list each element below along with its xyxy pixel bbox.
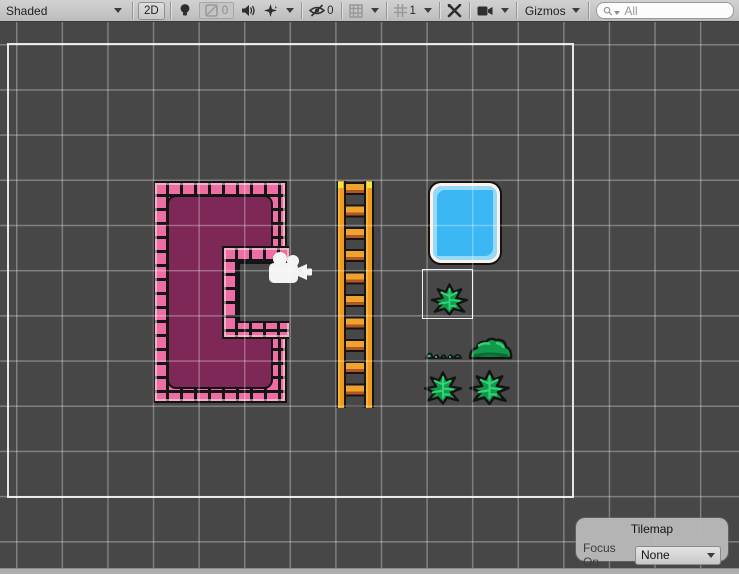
focus-on-value: None	[641, 548, 670, 562]
toolbar-separator	[341, 2, 342, 19]
2d-label: 2D	[144, 5, 159, 17]
grid-snap-dropdown[interactable]	[420, 0, 436, 21]
unity-scene-view: Shaded 2D 0	[0, 0, 739, 574]
chevron-down-icon	[371, 8, 379, 13]
camera-gizmo[interactable]	[266, 251, 312, 286]
grass-strip[interactable]	[425, 348, 462, 360]
exposure-value: 0	[222, 5, 228, 17]
tile-selection-box[interactable]	[422, 269, 473, 319]
camera-icon	[477, 5, 493, 17]
toolbar-separator	[386, 2, 387, 19]
ladder-tip-right	[367, 182, 372, 188]
window-bottom-edge	[0, 568, 739, 574]
grid-paint-icon	[349, 4, 363, 18]
audio-icon	[241, 4, 255, 17]
image-icon	[205, 4, 218, 17]
ladder-rungs	[345, 182, 365, 407]
scene-view-toolbar: Shaded 2D 0	[0, 0, 739, 22]
toolbar-separator	[516, 2, 517, 19]
grid-visual-dropdown[interactable]	[367, 0, 383, 21]
effects-dropdown[interactable]	[282, 0, 298, 21]
fern-bush[interactable]	[468, 369, 511, 405]
hidden-count: 0	[327, 5, 333, 17]
draw-mode-dropdown[interactable]: Shaded	[0, 0, 129, 21]
audio-toggle-button[interactable]	[237, 0, 259, 21]
water-tile[interactable]	[428, 181, 502, 265]
toolbar-separator	[132, 2, 133, 19]
grid-visual-button[interactable]	[345, 0, 367, 21]
scene-search-field[interactable]	[596, 2, 734, 19]
draw-mode-label: Shaded	[6, 4, 47, 18]
2d-toggle-button[interactable]: 2D	[138, 2, 165, 20]
round-bush[interactable]	[468, 336, 513, 361]
effects-button[interactable]	[259, 0, 282, 21]
chevron-down-icon	[286, 8, 294, 13]
focus-on-label: Focus On	[583, 541, 627, 569]
grid-value: 1	[410, 5, 416, 17]
grid-snap-icon	[394, 4, 407, 17]
chevron-down-icon	[707, 553, 715, 558]
component-tools-button[interactable]	[443, 0, 466, 21]
light-bulb-icon	[178, 3, 192, 18]
toolbar-separator	[439, 2, 440, 19]
search-filter-arrow-icon	[614, 11, 620, 15]
pink-brick-room-tilemap[interactable]	[153, 181, 287, 403]
gizmos-label: Gizmos	[525, 4, 566, 18]
effects-icon	[263, 4, 278, 18]
toolbar-separator	[588, 2, 589, 19]
search-input[interactable]	[622, 3, 727, 19]
chevron-down-icon	[572, 8, 580, 13]
hidden-objects-button[interactable]: 0	[305, 0, 337, 21]
eye-slash-icon	[309, 4, 325, 17]
fern-bush[interactable]	[423, 370, 463, 405]
scene-viewport[interactable]: Tilemap Focus On None	[0, 22, 739, 569]
toolbar-separator	[469, 2, 470, 19]
scene-camera-dropdown[interactable]	[497, 0, 513, 21]
ladder-rail-left	[336, 181, 346, 408]
tilemap-panel-title: Tilemap	[576, 518, 728, 536]
ladder-tilemap[interactable]	[336, 181, 374, 408]
scene-lighting-button[interactable]	[174, 0, 196, 21]
scene-camera-button[interactable]	[473, 0, 497, 21]
toolbar-separator	[170, 2, 171, 19]
tilemap-overlay-panel: Tilemap Focus On None	[576, 518, 728, 561]
tools-icon	[447, 4, 462, 18]
water-fill	[433, 186, 497, 260]
chevron-down-icon	[114, 8, 122, 13]
ladder-rail-right	[364, 181, 374, 408]
chevron-down-icon	[424, 8, 432, 13]
exposure-field[interactable]: 0	[199, 2, 234, 19]
grid-snap-button[interactable]: 1	[390, 0, 420, 21]
toolbar-separator	[301, 2, 302, 19]
ladder-tip-left	[338, 182, 343, 188]
chevron-down-icon	[501, 8, 509, 13]
focus-on-dropdown[interactable]: None	[635, 546, 721, 565]
search-icon	[603, 5, 613, 17]
gizmos-dropdown[interactable]: Gizmos	[520, 4, 585, 18]
